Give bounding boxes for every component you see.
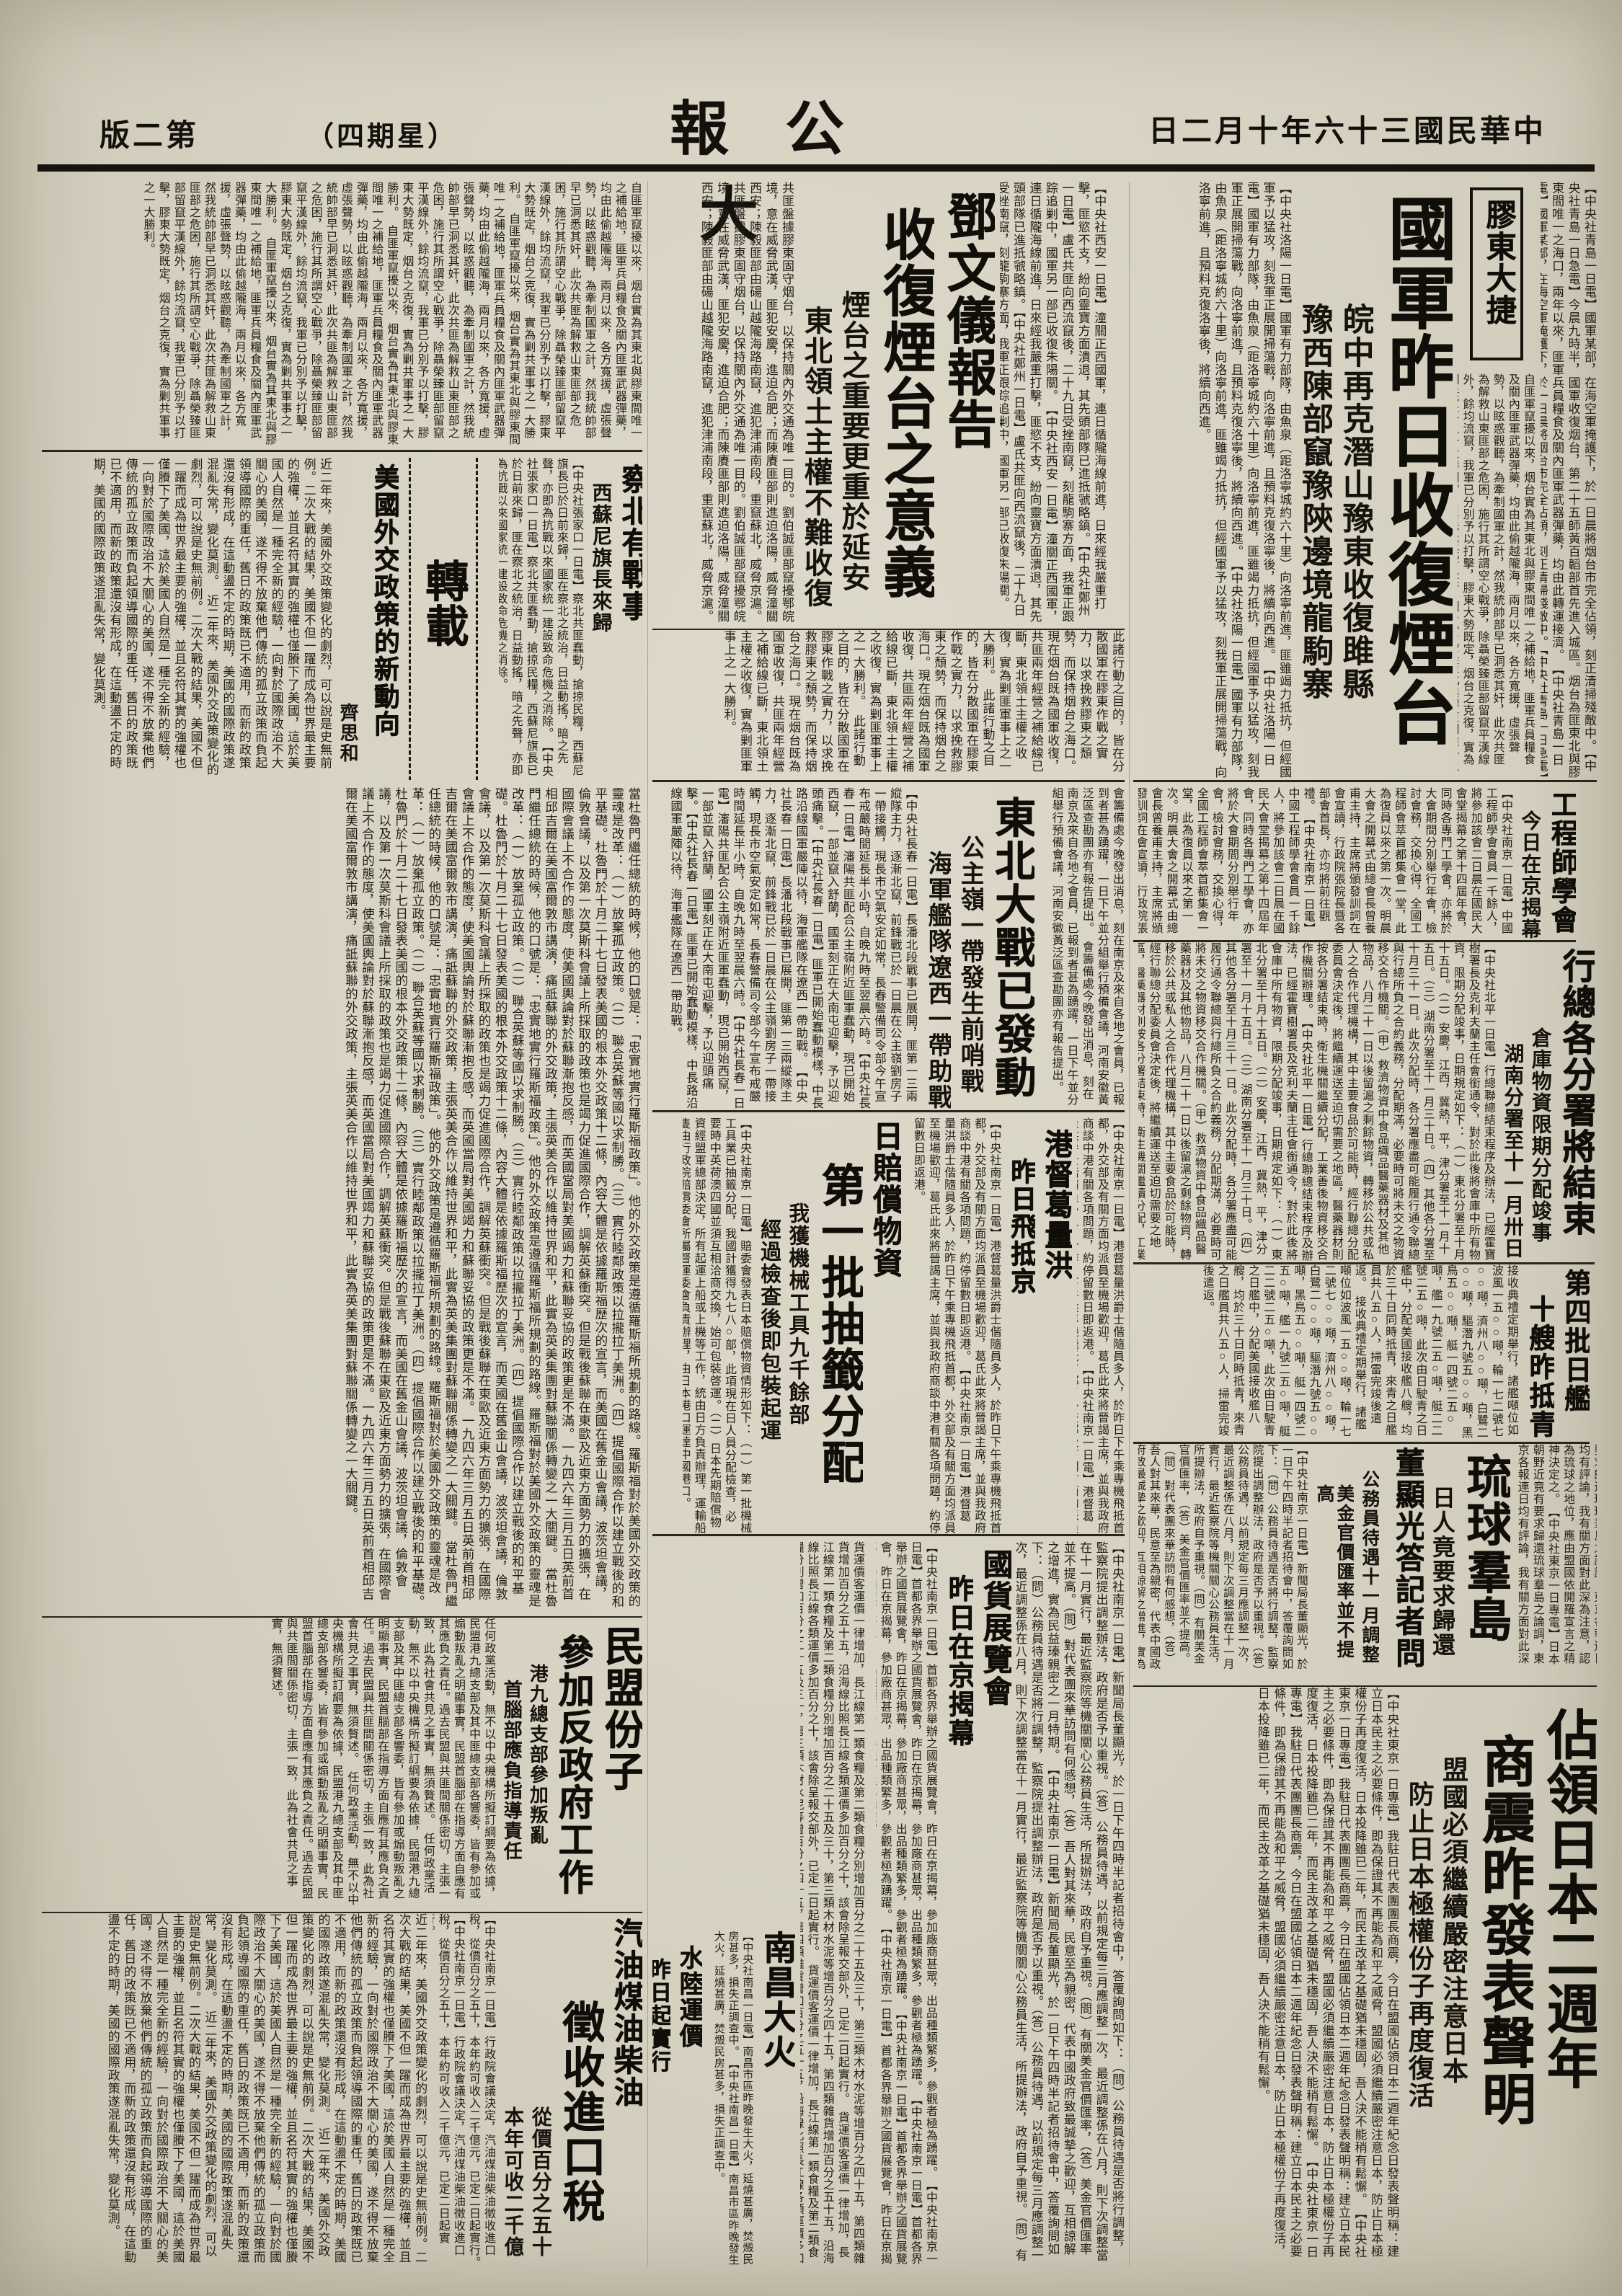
engineers-headline: 工程師學會 <box>1546 787 1576 940</box>
newspaper-page: 日二月十年六十三國民華中 報公大 （四期星） 版二第 【中央社青島一日電】國軍某… <box>0 0 1622 2296</box>
minmeng-headline-2: 參加反政府工作 <box>553 1618 593 1906</box>
guohuo-body: 【中央社南京一日電】首都各界舉辦之國貨展覽會，昨日在京揭幕，參加廠商甚眾，出品種… <box>876 1541 938 2266</box>
qiyou-subhead-2: 本年可收二千億 <box>501 1913 523 2266</box>
ships-headline-1: 第四批日艦 <box>1559 1264 1590 1442</box>
deng-wire-column: 【中央社西安一日電】潼關正西國軍，連日循隴海線前進，日來經我嚴重打擊，匪慾不支，… <box>1000 182 1107 624</box>
usa-author: 齊思和 <box>337 458 358 780</box>
deng-headline: 收復煙台之意義 <box>874 182 935 624</box>
lead-tag-column: 膠東大捷 自匪軍竄擾以來，烟台實為其東北與膠東間唯一之補給地，匪軍兵員糧食及關內… <box>1458 182 1535 777</box>
peichang-kicker: 日賠償物資 <box>868 1117 901 1534</box>
freight-body-mid: 貨運價客運價一律增加，長江線第一類食糧及第二類食糧分別增加百分之二十五及三十，第… <box>800 1541 865 2266</box>
engineers-body: 【中央社南京一日電】中國工程師學會會員一千餘人，將參加該會二日晨在國民大會堂揭幕… <box>1138 787 1513 940</box>
qiyou-headline-1: 汽油煤油柴油 <box>609 1913 642 2266</box>
ships-body: 接收典禮定期舉行，諸艦噸位如波風一五○○噸，輪一七二號七○○噸，濟州八○○噸，白… <box>1138 1264 1519 1442</box>
reprint-row: 察北有戰事 西蘇尼旗長來歸 【中央社張家口一日電】察北共匪蠢動，搶掠民糧，西蘇尼… <box>42 458 642 780</box>
page-edition: 版二第 <box>99 111 199 155</box>
deng-kicker: 鄧文儀報告 <box>939 182 995 624</box>
column-divider <box>1129 182 1130 2266</box>
deng-subhead-2: 東北領土主權不難收復 <box>799 182 832 624</box>
hk-headline-1: 港督葛量洪 <box>1040 1117 1072 1534</box>
column-divider <box>647 182 648 2266</box>
article-dongbei: 會籌備處今晚發出消息，刻在南京及來自各地之會員，已報到者甚為踴躍，一日下午並分組… <box>652 787 1125 1112</box>
guohuo-headline-1: 國貨展覽會 <box>978 1541 1011 2266</box>
japan2-body: 【中央社東京一日專電】我駐日代表團團長商震，今日在盟國佔領日本二週年紀念日發表聲… <box>1148 1687 1399 2268</box>
deng-headline-row: 【中央社西安一日電】潼關正西國軍，連日循隴海線前進，日來經我嚴重打擊，匪慾不支，… <box>652 182 1107 624</box>
dongbei-body: 【中央社長春一日電】長潘北段戰事已展開，匪第一三兩縱隊主力，逐漸北竄，前鋒戰已於… <box>665 787 918 1110</box>
dong-subhead-1: 公務員待遇十一月調整 <box>1359 1444 1379 1673</box>
ships-headline-2: 十艘昨抵青 <box>1524 1264 1554 1442</box>
lead-subhead-1: 皖中再克潛山豫東收復雎縣 <box>1337 182 1373 780</box>
japan2-headline-2: 商震昨發表聲明 <box>1473 1687 1533 2268</box>
dongbei-body-right: 會籌備處今晚發出消息，刻在南京及來自各地之會員，已報到者甚為踴躍，一日下午並分組… <box>1040 787 1125 1110</box>
article-peichang: 日賠償物資 第一批抽籤分配 我獲機械工具九千餘部 經過檢查後即包裝起運 【中央社… <box>659 1117 901 1534</box>
peichang-body: 【中央社南京一日電】賠委會發表日本賠償物資情形如下：（一）第一批機械工具業已抽籤… <box>683 1117 752 1534</box>
article-chabei: 察北有戰事 西蘇尼旗長來歸 【中央社張家口一日電】察北共匪蠢動，搶掠民糧，西蘇尼… <box>483 458 642 780</box>
ryukyu-body: 【中央社東京一日專電】日本朝野近竟有要求歸還琉球羣島之論調，東京各報連日均有評論… <box>1515 1444 1597 1673</box>
cnrra-subhead-2: 湖南分署至十一月卅日 <box>1501 942 1523 1262</box>
chabei-headline: 察北有戰事 <box>617 458 642 780</box>
deng-subhead-1: 煙台之重要更重於延安 <box>837 182 869 624</box>
peichang-subhead-2: 經過檢查後即包裝起運 <box>757 1117 780 1534</box>
zone-reparations: 【中央社南京一日電】港督葛量洪爵士偕隨員多人，於昨日下午乘專機飛抵首都，外交部及… <box>652 1117 1125 1536</box>
dong-continuation: 【中央社南京一日電】新聞局長董顯光，於一日下午四時半記者招待會中，答覆詢問如下：… <box>1016 1541 1125 2266</box>
guohuo-headline-2: 昨日在京揭幕 <box>943 1541 973 2266</box>
dongbei-headline: 東北大戰已發動 <box>988 787 1034 1110</box>
article-minmeng: 民盟份子 參加反政府工作 港九總支部參加叛亂 首腦部應負指導責任 任何政黨活動，… <box>42 1616 642 1906</box>
nanchang-headline: 南昌大火 <box>758 1541 795 2266</box>
cnrra-body: 【中央社北平一日電】行總聯總結束程序及辦法，已經霍寶樹署長及克利夫蘭主任會銜通令… <box>1138 942 1496 1262</box>
hk-body-right: 【中央社南京一日電】港督葛量洪爵士偕隨員多人，於昨日下午乘專機飛抵首都，外交部及… <box>1077 1117 1125 1534</box>
article-cnrra: 行總各分署將結束 倉庫物資限期分配竣事 湖南分署至十一月卅日 【中央社北平一日電… <box>1133 942 1595 1264</box>
dongbei-subhead-2: 海軍艦隊遼西一帶助戰 <box>923 787 951 1110</box>
article-ryukyu-dong: 【中央社東京一日專電】日本朝野近竟有要求歸還琉球羣島之論調，東京各報連日均有評論… <box>1133 1444 1597 1673</box>
article-qiyou-row: 汽油煤油柴油 徵收進口稅 從價百分之五十 本年可收二千億 【中央社南京一日電】行… <box>42 1912 642 2266</box>
lead-headline: 國軍昨日收復煙台 <box>1378 182 1453 780</box>
masthead-rule <box>37 164 1595 172</box>
peichang-subhead-1: 我獲機械工具九千餘部 <box>786 1117 809 1534</box>
nanchang-body: 【中央社南昌一日電】南昌市區昨晚發生大火，延燒甚廣，焚燬民房甚多，損失正調查中。… <box>712 1541 753 2266</box>
zone-bottom-center: 【中央社南京一日電】新聞局長董顯光，於一日下午四時半記者招待會中，答覆詢問如下：… <box>652 1541 1125 2266</box>
dong-body: 【中央社南京一日電】新聞局長董顯光，於一日下午四時半記者招待會中，答覆詢問如下：… <box>1138 1444 1308 1673</box>
deng-body-bottom: 此諸行動之目的，皆在分散國軍在膠東作戰之實力，以求挽救膠東之頹勢，而保持烟台之海… <box>652 629 1125 779</box>
minmeng-headline-1: 民盟份子 <box>598 1618 642 1906</box>
article-engineers: 工程師學會 今日在京揭幕 【中央社南京一日電】中國工程師學會會員一千餘人，將參加… <box>1133 787 1576 942</box>
article-japan2: 佔領日本二週年 商震昨發表聲明 盟國必須繼續嚴密注意日本 防止日本極權份子再度復… <box>1133 1685 1597 2268</box>
minmeng-subhead-2: 首腦部應負指導責任 <box>501 1618 522 1906</box>
reprint-label: 轉載 <box>409 458 478 780</box>
ryukyu-subhead: 日人竟要求歸還 <box>1429 1444 1455 1673</box>
zone-right-middle: 工程師學會 今日在京揭幕 【中央社南京一日電】中國工程師學會會員一千餘人，將參加… <box>1133 787 1597 1680</box>
minmeng-subhead-1: 港九總支部參加叛亂 <box>527 1618 548 1906</box>
minmeng-body: 任何政黨活動，無不以中央機構所擬訂綱要為依據，民盟港九總支部及其中匪總支部各響委… <box>78 1618 496 1906</box>
page-weekday: （四期星） <box>306 114 458 154</box>
deng-body-start: 共匪盤據膠東固守烟台，以保持關內外交通為唯一目的。劉伯誠匪部竄擾鄂皖境，意在威脅… <box>657 182 794 624</box>
hk-headline-2: 昨日飛抵京 <box>1006 1117 1035 1534</box>
qiyou-subhead-1: 從價百分之五十 <box>528 1913 551 2266</box>
article-ships: 第四批日艦 十艘昨抵青 接收典禮定期舉行，諸艦噸位如波風一五○○噸，輪一七二號七… <box>1133 1264 1590 1444</box>
qiyou-body: 【中央社南京一日電】行政院會議決定，汽油煤油柴油徵收進口稅，從價百分之五十，本年… <box>433 1913 496 2266</box>
qiyou-headline-2: 徵收進口稅 <box>557 1913 604 2266</box>
article-nanchang: 南昌大火 【中央社南昌一日電】南昌市區昨晚發生大火，延燒甚廣，焚燬民房甚多，損失… <box>707 1541 795 2266</box>
zone-left-lower: 當杜魯門繼任總統的時候，他的口號是：「忠實地實行羅斯福政策」。他的外交政策是遵循… <box>42 787 642 2266</box>
zone-top-left: 自匪軍竄擾以來，烟台實為其東北與膠東間唯一之補給地，匪軍兵員糧食及關內匪軍武器彈… <box>42 182 642 780</box>
usa-body-start: 近二年來，美國外交政策變化的劇烈，可以說是史無前例。二次大戰的結果，美國不但一躍… <box>47 458 332 780</box>
freight-headline-2: 昨日起實行 <box>652 1541 670 2266</box>
article-deng: 【中央社西安一日電】潼關正西國軍，連日循隴海線前進，日來經我嚴重打擊，匪慾不支，… <box>652 182 1125 782</box>
usa-body-tail: 近二年來，美國外交政策變化的劇烈，可以說是史無前例。二次大戰的結果，美國不但一躍… <box>89 1913 427 2266</box>
japan2-headline-1: 佔領日本二週年 <box>1538 1687 1597 2268</box>
lead-body-left: 【中央社洛陽一日電】國軍有力部隊，由魚泉（距洛寧城約六十里）向洛寧前進，匪雖竭力… <box>1148 182 1292 780</box>
lead-body-right: 【中央社青島一日電】國軍某部，在海空軍掩護下，於一日晨將烟台市完全佔領，刻正清掃… <box>1541 182 1597 780</box>
lead-subhead-2: 豫西陳部竄豫陝邊境龍駒寨 <box>1297 182 1332 780</box>
freight-headline-1: 水陸運價 <box>675 1541 702 2266</box>
japan2-subhead-2: 防止日本極權份子再度復活 <box>1404 1687 1433 2268</box>
chabei-body: 【中央社張家口一日電】察北共匪蠢動，搶掠民糧，西蘇尼旗長已於日前來歸，匪在察北之… <box>499 458 584 780</box>
lead-body-under-tag: 自匪軍竄擾以來，烟台實為其東北與膠東間唯一之補給地，匪軍兵員糧食及關內匪軍武器彈… <box>1458 373 1535 777</box>
article-freight-heads: 水陸運價 昨日起實行 <box>652 1541 702 2266</box>
article-guohuo: 國貨展覽會 昨日在京揭幕 【中央社南京一日電】首都各界舉辦之國貨展覽會，昨日在京… <box>870 1541 1011 2266</box>
cnrra-subhead-1: 倉庫物資限期分配竣事 <box>1528 942 1551 1262</box>
peichang-headline: 第一批抽籤分配 <box>814 1117 863 1534</box>
usa-body-main: 當杜魯門繼任總統的時候，他的口號是：「忠實地實行羅斯福政策」。他的外交政策是遵循… <box>42 787 642 1609</box>
dongbei-subhead-1: 公主嶺一帶發生前哨戰 <box>956 787 983 1110</box>
cnrra-headline: 行總各分署將結束 <box>1556 942 1595 1262</box>
dong-headline: 董顯光答記者問 <box>1391 1444 1424 1673</box>
lead-tag-badge: 膠東大捷 <box>1470 187 1523 360</box>
engineers-subhead: 今日在京揭幕 <box>1518 787 1541 940</box>
usa-headline: 美國外交政策的新動向 <box>370 458 399 780</box>
page-date: 日二月十年六十三國民華中 <box>1148 107 1546 151</box>
warnews-continuation: 自匪軍竄擾以來，烟台實為其東北與膠東間唯一之補給地，匪軍兵員糧食及關內匪軍武器彈… <box>42 182 642 452</box>
ryukyu-headline: 琉球羣島 <box>1460 1444 1510 1673</box>
hk-body-left: 【中央社南京一日電】港督葛量洪爵士偕隨員多人，於昨日下午乘專機飛抵首都，外交部及… <box>906 1117 1001 1534</box>
article-lead: 【中央社青島一日電】國軍某部，在海空軍掩護下，於一日晨將烟台市完全佔領，刻正清掃… <box>1133 182 1597 782</box>
dong-subhead-2: 美金官價匯率並不提高 <box>1313 1444 1354 1673</box>
japan2-subhead-1: 盟國必須繼續嚴密注意日本 <box>1439 1687 1468 2268</box>
chabei-subhead: 西蘇尼旗長來歸 <box>589 458 611 780</box>
